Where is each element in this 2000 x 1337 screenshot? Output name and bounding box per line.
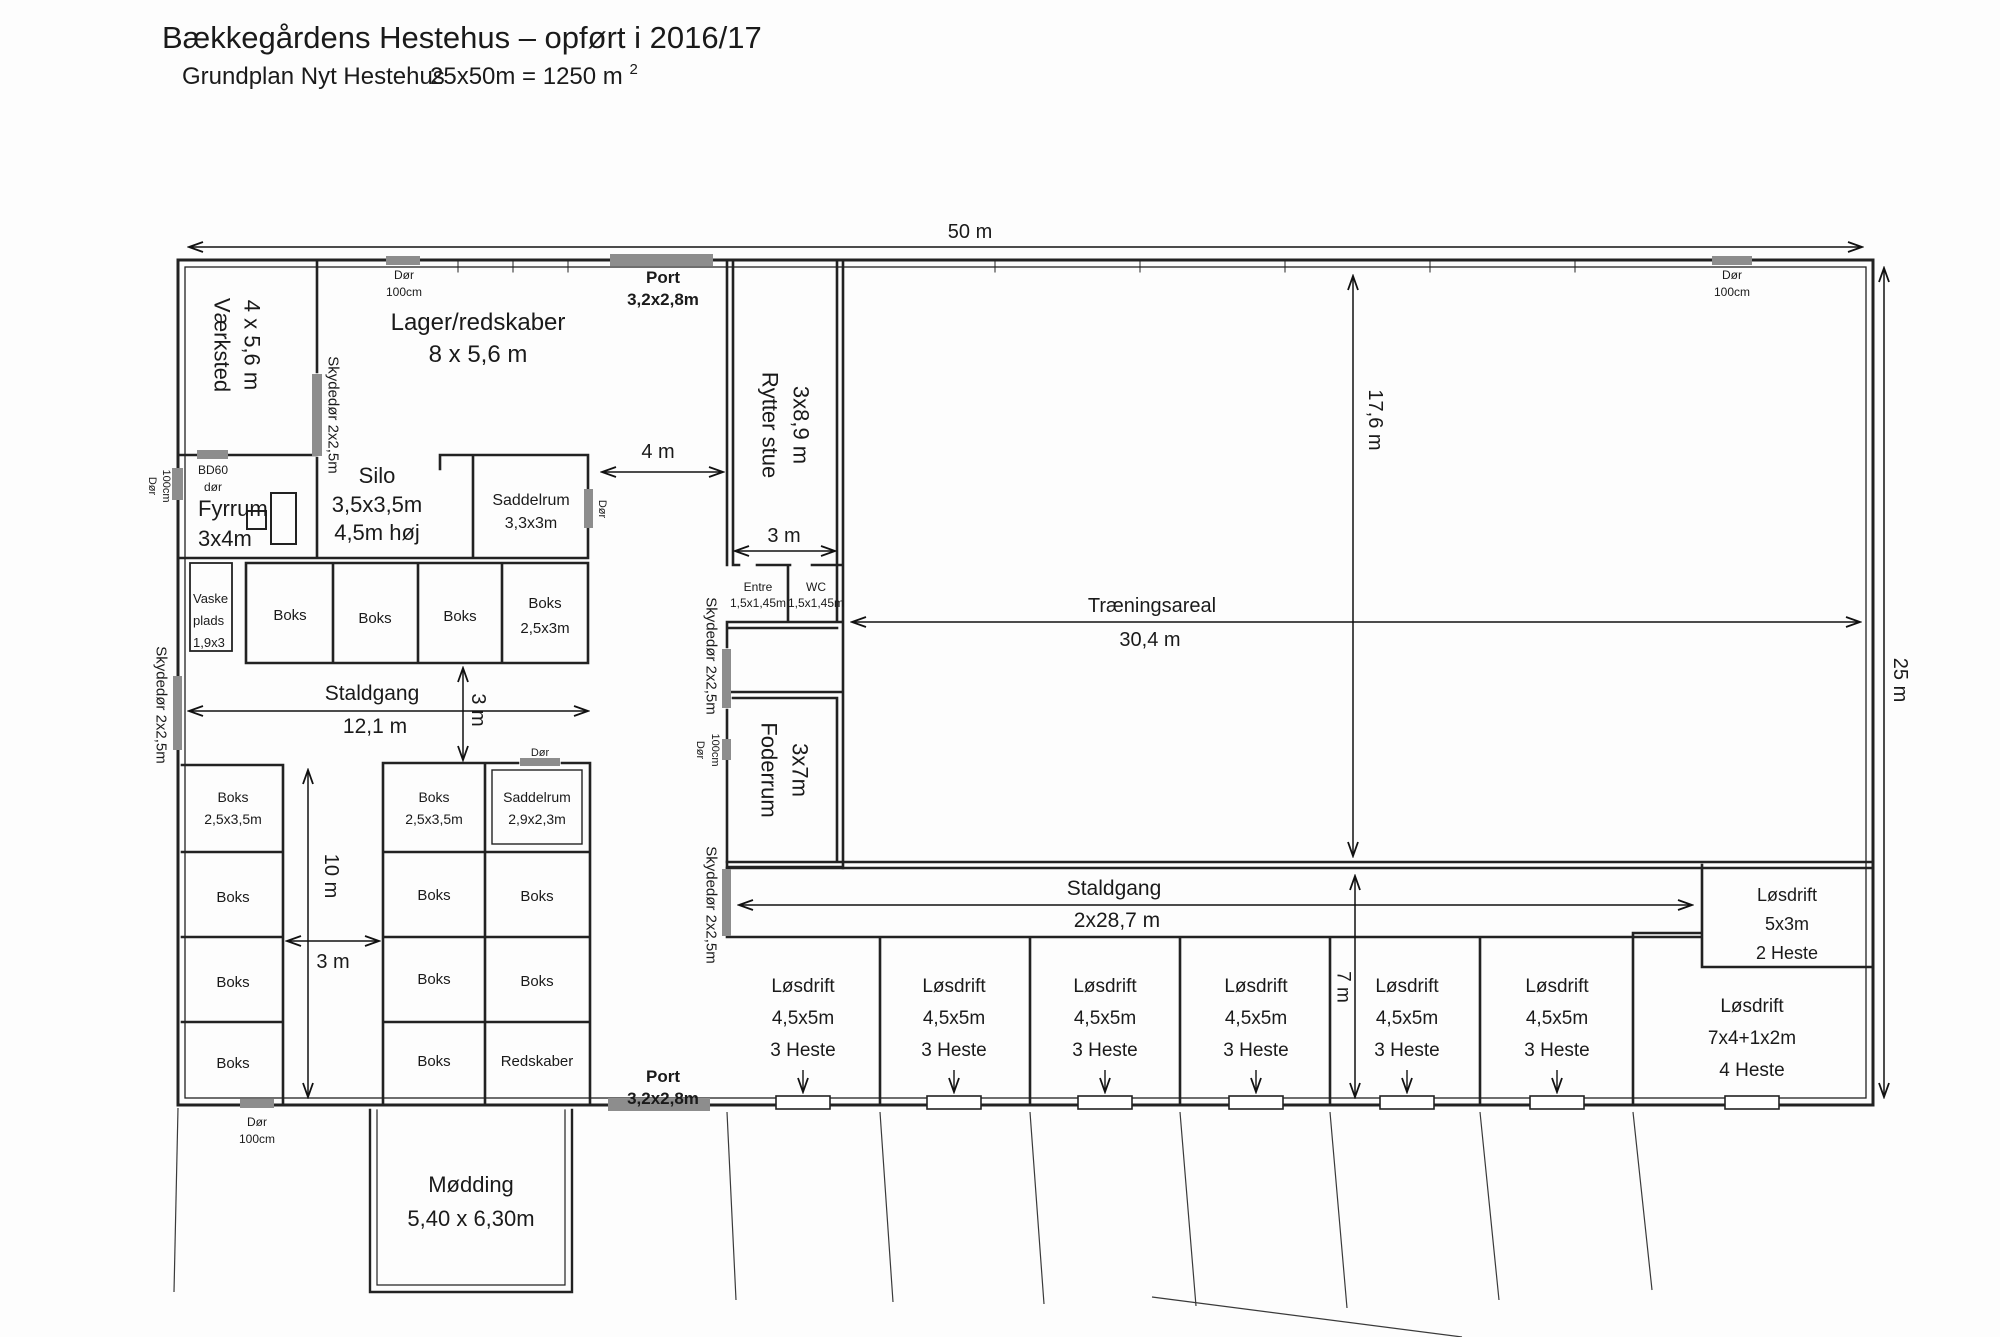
label-foderrum-size: 3x7m: [788, 743, 813, 797]
loesdrift-name: Løsdrift: [922, 976, 986, 997]
label-door-top-right-size: 100cm: [1714, 285, 1750, 299]
door-bottom-left: [240, 1099, 274, 1108]
loesdrift-size: 4,5x5m: [923, 1008, 985, 1029]
loesdrift-name: Løsdrift: [771, 976, 835, 997]
label-skydedor-central-upper: Skydedør 2x2,5m: [703, 597, 720, 715]
sliding-door-vaerksted: [312, 374, 322, 456]
gate: [1078, 1096, 1132, 1109]
label-boks: Boks: [216, 1055, 249, 1072]
label-door-saddelrum-lower: Dør: [531, 747, 550, 759]
door-top-left: [386, 256, 420, 265]
port-top-opening: [610, 254, 713, 266]
label-traeningsareal: Træningsareal: [1088, 595, 1216, 617]
loesdrift-horses: 3 Heste: [770, 1040, 835, 1061]
label-boks: Boks: [358, 610, 391, 627]
label-vaerksted: Værksted: [210, 298, 235, 392]
label-port-bottom: Port: [646, 1067, 680, 1086]
label-saddelrum-upper: Saddelrum: [492, 492, 569, 509]
label-rytterstue: Rytter stue: [758, 372, 783, 478]
gate: [1725, 1096, 1779, 1109]
label-wc: WC: [806, 580, 826, 594]
label-skydedor-central-lower: Skydedør 2x2,5m: [703, 846, 720, 964]
label-saddelrum-lower: Saddelrum: [503, 789, 571, 805]
dim-25m: 25 m: [1889, 658, 1911, 702]
loesdrift-box-3: Løsdrift 4,5x5m 3 Heste: [1072, 976, 1137, 1061]
loesdrift-box-5: Løsdrift 4,5x5m 3 Heste: [1374, 976, 1439, 1061]
label-door-central: Dør: [694, 741, 706, 760]
label-door-top-left-size: 100cm: [386, 285, 422, 299]
label-boks: Boks: [520, 973, 553, 990]
page-subtitle: Grundplan Nyt Hestehus 25x50m = 1250 m 2: [182, 61, 638, 90]
loesdrift-size: 4,5x5m: [1225, 1008, 1287, 1029]
label-redskaber: Redskaber: [501, 1053, 574, 1070]
label-door-bottom-size: 100cm: [239, 1132, 275, 1146]
loesdrift-horses: 3 Heste: [1072, 1040, 1137, 1061]
title-block: Bækkegårdens Hestehus – opført i 2016/17…: [162, 20, 762, 90]
label-boks: Boks: [417, 1053, 450, 1070]
dim-3m-bottom: 3 m: [316, 951, 349, 973]
label-silo-height: 4,5m høj: [334, 520, 420, 545]
label-boks: Boks: [417, 971, 450, 988]
loesdrift-box-2: Løsdrift 4,5x5m 3 Heste: [921, 976, 986, 1061]
interior-walls-center: [727, 262, 843, 868]
door-saddelrum-lower: [520, 758, 560, 766]
loesdrift-box-1: Løsdrift 4,5x5m 3 Heste: [770, 976, 835, 1061]
loesdrift-name: Løsdrift: [1720, 996, 1784, 1017]
label-door-left-wall: Dør: [146, 477, 158, 496]
dim-50m: 50 m: [948, 221, 992, 243]
label-boks: Boks: [417, 887, 450, 904]
loesdrift-labels: Løsdrift 4,5x5m 3 Heste Løsdrift 4,5x5m …: [770, 885, 1818, 1081]
sliding-door-central-2: [722, 869, 731, 936]
loesdrift-size: 4,5x5m: [1376, 1008, 1438, 1029]
door-top-right: [1712, 256, 1752, 265]
loesdrift-horses: 3 Heste: [1374, 1040, 1439, 1061]
label-staldgang-lower: Staldgang: [1067, 877, 1162, 900]
label-vaskeplads-1: Vaske: [193, 591, 228, 606]
subtitle-area-sup: 2: [629, 61, 637, 78]
dimension-lines: [189, 247, 1884, 1097]
label-port-top: Port: [646, 268, 680, 287]
room-labels: Værksted 4 x 5,6 m Lager/redskaber 8 x 5…: [193, 298, 844, 1231]
label-foderrum: Foderrum: [757, 722, 782, 817]
sliding-door-central-1: [722, 649, 731, 708]
label-port-top-size: 3,2x2,8m: [627, 290, 699, 309]
label-vaerksted-size: 4 x 5,6 m: [240, 300, 265, 390]
gate: [1530, 1096, 1584, 1109]
loesdrift-box-6: Løsdrift 4,5x5m 3 Heste: [1524, 976, 1589, 1061]
loesdrift-horses: 2 Heste: [1756, 943, 1818, 963]
loesdrift-size: 4,5x5m: [772, 1008, 834, 1029]
label-fyrrum: Fyrrum: [198, 496, 268, 521]
dim-3m-staldgang: 3 m: [467, 693, 489, 726]
label-boks: Boks: [216, 889, 249, 906]
loesdrift-name: Løsdrift: [1375, 976, 1439, 997]
gate: [927, 1096, 981, 1109]
dim-4m: 4 m: [641, 441, 674, 463]
loesdrift-horses: 3 Heste: [1524, 1040, 1589, 1061]
loesdrift-corner-large: Løsdrift 7x4+1x2m 4 Heste: [1708, 996, 1796, 1081]
label-saddelrum-lower-size: 2,9x2,3m: [508, 811, 566, 827]
subtitle-area: 25x50m = 1250 m: [430, 63, 623, 90]
label-wc-size: 1,5x1,45m: [788, 596, 844, 610]
label-entre-size: 1,5x1,45m: [730, 596, 786, 610]
dim-10m: 10 m: [320, 854, 342, 898]
walls: [178, 260, 1873, 1292]
label-boks-25x35: Boks: [418, 789, 449, 805]
loesdrift-size: 4,5x5m: [1526, 1008, 1588, 1029]
door-left-wall: [172, 468, 183, 500]
loesdrift-box-4: Løsdrift 4,5x5m 3 Heste: [1223, 976, 1288, 1061]
sliding-door-left-wall: [173, 676, 182, 750]
door-central-foderrum: [722, 739, 731, 760]
label-moedding-size: 5,40 x 6,30m: [407, 1206, 534, 1231]
saddelrum-lower-inner-wall: [492, 770, 582, 844]
fence-left: [174, 1108, 178, 1292]
label-door-left-wall-size: 100cm: [160, 469, 172, 502]
label-silo-size: 3,5x3,5m: [332, 492, 423, 517]
label-boks: Boks: [443, 608, 476, 625]
label-boks: Boks: [216, 974, 249, 991]
label-vaskeplads-2: plads: [193, 613, 225, 628]
gate: [1380, 1096, 1434, 1109]
loesdrift-name: Løsdrift: [1525, 976, 1589, 997]
label-door-top-left: Dør: [394, 268, 414, 282]
loesdrift-row-walls: [727, 865, 1873, 1103]
rotated-gray-labels: Skydedør 2x2,5m Skydedør 2x2,5m Skydedør…: [146, 356, 721, 964]
label-bd60: BD60: [198, 463, 228, 477]
dim-7m: 7 m: [1333, 971, 1354, 1003]
floor-plan-canvas: Bækkegårdens Hestehus – opført i 2016/17…: [0, 0, 2000, 1337]
loesdrift-size: 7x4+1x2m: [1708, 1028, 1796, 1049]
label-bd60-dor: dør: [204, 480, 222, 494]
door-saddelrum-upper: [584, 489, 593, 528]
gate: [1229, 1096, 1283, 1109]
loesdrift-corner-small: Løsdrift 5x3m 2 Heste: [1756, 885, 1818, 963]
label-skydedor-vaerksted: Skydedør 2x2,5m: [325, 356, 342, 474]
loesdrift-name: Løsdrift: [1757, 885, 1817, 905]
label-boks-25x35-size: 2,5x3,5m: [204, 811, 262, 827]
fence-paddocks: [727, 1112, 1652, 1308]
dim-3m-rytter: 3 m: [767, 525, 800, 547]
loesdrift-horses: 3 Heste: [1223, 1040, 1288, 1061]
label-boks-25x35-size: 2,5x3,5m: [405, 811, 463, 827]
label-moedding: Mødding: [428, 1172, 514, 1197]
label-rytterstue-size: 3x8,9 m: [789, 386, 814, 464]
label-skydedor-left-wall: Skydedør 2x2,5m: [153, 646, 170, 764]
label-boks-25x3: Boks: [528, 595, 561, 612]
label-door-central-size: 100cm: [709, 733, 721, 766]
label-port-bottom-size: 3,2x2,8m: [627, 1089, 699, 1108]
loesdrift-horses: 3 Heste: [921, 1040, 986, 1061]
label-boks: Boks: [520, 888, 553, 905]
dim-28-7m: 2x28,7 m: [1074, 909, 1160, 932]
boks-labels: Boks Boks Boks Boks 2,5x3m Boks 2,5x3,5m…: [204, 595, 569, 1072]
label-saddelrum-upper-size: 3,3x3m: [505, 515, 557, 532]
fence-lines: [174, 1108, 1652, 1337]
label-boks: Boks: [273, 607, 306, 624]
label-boks-25x35: Boks: [217, 789, 248, 805]
moedding-walls: [370, 1110, 572, 1292]
page-title: Bækkegårdens Hestehus – opført i 2016/17: [162, 20, 762, 55]
label-boks-25x3-size: 2,5x3m: [520, 620, 569, 637]
label-lager: Lager/redskaber: [391, 309, 566, 336]
label-silo: Silo: [359, 463, 396, 488]
label-staldgang-upper: Staldgang: [325, 682, 420, 705]
dim-17-6m: 17,6 m: [1364, 389, 1386, 450]
dim-30-4m: 30,4 m: [1119, 629, 1180, 651]
label-door-saddelrum-upper: Dør: [596, 500, 608, 519]
label-fyrrum-size: 3x4m: [198, 526, 252, 551]
label-vaskeplads-3: 1,9x3: [193, 635, 225, 650]
loesdrift-size: 5x3m: [1765, 914, 1809, 934]
loesdrift-size: 4,5x5m: [1074, 1008, 1136, 1029]
floor-plan-page: Bækkegårdens Hestehus – opført i 2016/17…: [0, 0, 2000, 1337]
fence-diagonal: [1152, 1297, 1462, 1337]
label-lager-size: 8 x 5,6 m: [429, 341, 528, 368]
moedding-inner-wall: [377, 1110, 565, 1285]
label-entre: Entre: [744, 580, 773, 594]
dim-12-1m: 12,1 m: [343, 715, 407, 738]
subtitle-left: Grundplan Nyt Hestehus: [182, 63, 445, 90]
gate: [776, 1096, 830, 1109]
label-door-top-right: Dør: [1722, 268, 1742, 282]
loesdrift-name: Løsdrift: [1073, 976, 1137, 997]
loesdrift-name: Løsdrift: [1224, 976, 1288, 997]
label-door-bottom: Dør: [247, 1115, 267, 1129]
door-bd60: [197, 450, 228, 459]
loesdrift-horses: 4 Heste: [1719, 1060, 1784, 1081]
